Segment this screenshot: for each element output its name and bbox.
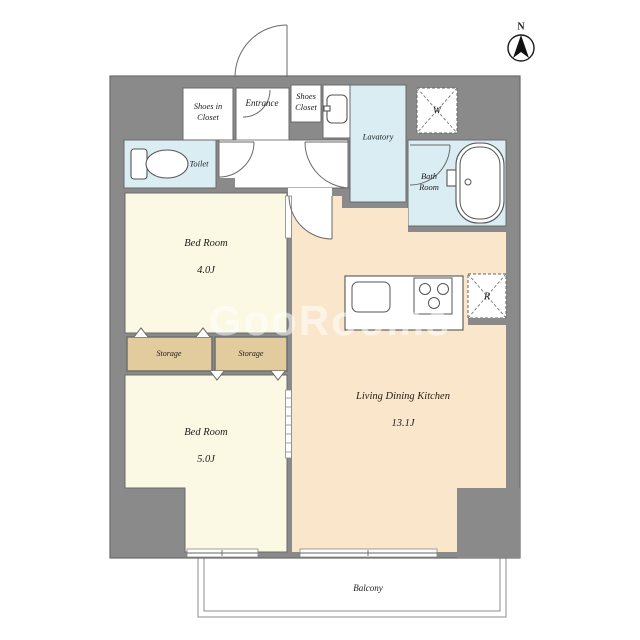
toilet-icon [131, 149, 188, 179]
room-entrance [236, 88, 289, 140]
wall-stub-hall [216, 178, 235, 192]
north-arrow-icon [508, 35, 534, 61]
window-bedroom2 [187, 549, 258, 557]
room-bedroom-1 [125, 193, 287, 333]
refrigerator-space-icon [468, 274, 506, 325]
bedroom2-door-panel [286, 390, 292, 458]
wall-notch-ldk [457, 488, 520, 558]
washbasin-icon [324, 95, 347, 123]
washing-machine-space-icon [417, 88, 457, 133]
balcony-outline [198, 556, 506, 617]
storage-left [127, 337, 212, 371]
kitchen-counter [345, 276, 463, 330]
room-shoes-in-closet [183, 88, 233, 140]
room-ldk-mid [342, 208, 408, 552]
hallway [219, 140, 348, 188]
room-lavatory [350, 85, 406, 202]
room-shoes-closet [291, 85, 321, 122]
bedroom1-door-panel [286, 196, 292, 238]
ldk-doorway [288, 188, 332, 197]
floor-plan: Shoes in Closet Entrance Shoes Closet La… [0, 0, 640, 640]
room-ldk-left [292, 196, 342, 552]
storage-right [215, 337, 287, 371]
floor-plan-drawing [0, 0, 640, 640]
window-ldk [300, 549, 437, 557]
